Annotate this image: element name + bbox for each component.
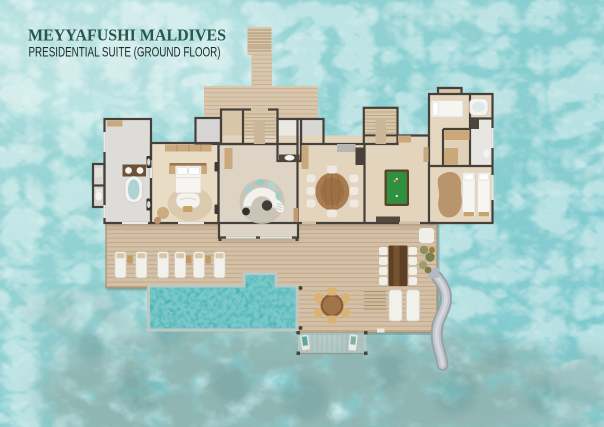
svg-text:MEYYAFUSHI MALDIVES: MEYYAFUSHI MALDIVES bbox=[28, 26, 226, 45]
svg-text:PRESIDENTIAL SUITE (GROUND FLO: PRESIDENTIAL SUITE (GROUND FLOOR) bbox=[29, 45, 221, 60]
